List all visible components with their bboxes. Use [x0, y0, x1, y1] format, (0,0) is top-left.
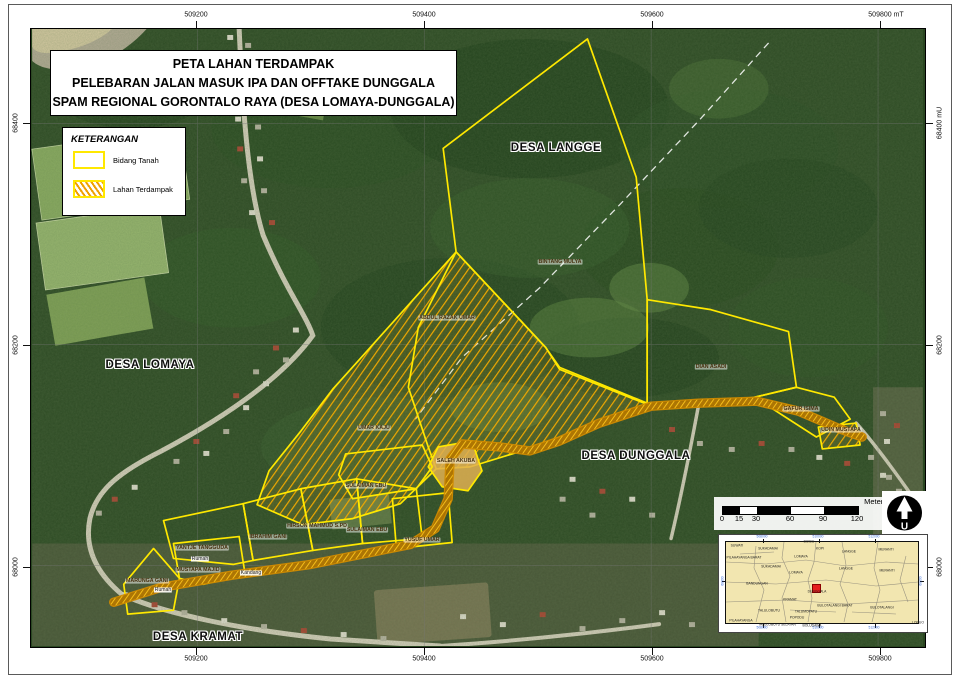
- inset-tick-bottom-3: 512000: [868, 626, 879, 629]
- parcel-label-ibrahim-gani: IBRAHIM GANI: [248, 534, 287, 539]
- parcel-label-sulaiman-ebu-2: SULAIMAN EBU: [346, 527, 388, 532]
- north-letter: U: [901, 522, 908, 533]
- axis-label-bottom-3: 509600: [640, 656, 663, 663]
- axis-label-top-2: 509400: [412, 12, 435, 19]
- north-arrow-icon: U: [882, 491, 927, 537]
- inset-tick-left: 68000: [721, 576, 724, 585]
- scale-tick-30: 30: [752, 514, 760, 523]
- inset-region-talulobutu: TALULOBUTU: [758, 609, 780, 612]
- scale-bar: Meters 0 15 30 60 90 120: [714, 497, 890, 530]
- parcel-label-umar-kaju: UMAR KAJU: [357, 425, 390, 430]
- inset-region-lomaya-2: LOMAYA: [789, 571, 803, 574]
- inset-region-suwati: SUWATI: [731, 544, 744, 547]
- inset-region-bandungan: BANDUNGAN: [746, 582, 767, 585]
- axis-label-top-3: 509600: [640, 12, 663, 19]
- inset-region-popodu: POPODU: [790, 616, 805, 619]
- scale-tick-0: 0: [720, 514, 724, 523]
- inset-region-talumopatu: TALUMOPATU: [795, 610, 817, 613]
- axis-label-right-1: 68400 mU: [937, 107, 944, 139]
- title-block: PETA LAHAN TERDAMPAK PELEBARAN JALAN MAS…: [50, 50, 457, 116]
- inset-region-pilahayanga-barat: PILAHAYANGA BARAT: [727, 556, 762, 559]
- legend-title: KETERANGAN: [71, 134, 138, 145]
- scale-tick-120: 120: [851, 514, 864, 523]
- legend: KETERANGAN Bidang Tanah Lahan Terdampak: [62, 127, 186, 216]
- inset-region-kramat: KRAMAT: [783, 598, 797, 601]
- axis-label-top-4: 509800 mT: [868, 12, 903, 19]
- north-arrow: U: [882, 491, 927, 537]
- map-title-line1: PETA LAHAN TERDAMPAK: [51, 55, 456, 74]
- inset-region-boludawa: BOLUDAWA: [803, 624, 822, 627]
- parcel-label-mustapa-majid: MUSTAPA MAJID: [176, 567, 221, 572]
- inset-region-talulobutu-selatan: TALULOBUTU SELATAN: [758, 623, 796, 626]
- legend-label-bidang-tanah: Bidang Tanah: [113, 156, 159, 165]
- parcel-label-bintang-mulya: BINTANG MULYA: [538, 259, 583, 264]
- village-label-kramat: DESA KRAMAT: [153, 631, 243, 643]
- axis-label-bottom-2: 509400: [412, 656, 435, 663]
- legend-label-lahan-terdampak: Lahan Terdampak: [113, 185, 173, 194]
- parcel-label-yantje-tangguda: YANTJE TANGGUDA: [175, 545, 229, 550]
- inset-region-meranti-1: MERANTI: [878, 548, 893, 551]
- axis-label-left-2: 68200: [13, 335, 20, 354]
- inset-region-meranti-2: MERANTI: [879, 569, 894, 572]
- inset-region-kopi: KOPI: [816, 547, 824, 550]
- village-label-langge: DESA LANGGE: [511, 142, 602, 154]
- map-title-line2: PELEBARAN JALAN MASUK IPA DAN OFFTAKE DU…: [51, 74, 456, 93]
- structure-label-kandang: Kandang: [240, 570, 262, 575]
- inset-region-bulotalangi: BULOTALANGI: [870, 606, 893, 609]
- axis-label-left-3: 68000: [13, 557, 20, 576]
- inset-region-dunggala: DUNGGALA: [808, 590, 827, 593]
- inset-region-boidu: BOIDU: [804, 540, 815, 543]
- inset-region-lomaya-1: LOMAYA: [794, 555, 808, 558]
- inset-region-langge-2: LANGGE: [839, 567, 853, 570]
- legend-swatch-bidang-tanah: [73, 151, 105, 169]
- parcel-label-gafur-isima: GAFUR ISIMA: [783, 406, 820, 411]
- map-title-line3: SPAM REGIONAL GORONTALO RAYA (DESA LOMAY…: [51, 93, 456, 112]
- parcel-label-abdul-razak-umar: ABDUL RAZAK UMAR: [418, 315, 475, 320]
- inset-region-pilahayanga: PILAHAYANGA: [729, 619, 752, 622]
- village-label-dunggala: DESA DUNGGALA: [582, 450, 691, 462]
- map-page: 509200 509400 509600 509800 mT 509200 50…: [0, 0, 960, 679]
- axis-label-left-1: 68400: [13, 113, 20, 132]
- inset-region-lonuo: LONUO: [912, 621, 924, 624]
- inset-region-sukadamai-1: SUKADAMAI: [758, 547, 778, 550]
- inset-tick-top-2: 510000: [812, 535, 823, 538]
- inset-tick-bottom-1: 508000: [756, 626, 767, 629]
- structure-label-rumah-1: Rumah: [191, 556, 209, 561]
- scale-tick-60: 60: [786, 514, 794, 523]
- inset-region-langge-1: LANGGE: [842, 550, 856, 553]
- parcel-label-dian-asadi: DIAN ASADI: [695, 364, 727, 369]
- parcel-label-marunga-gani: MARUNGA GANI: [125, 578, 169, 583]
- scale-tick-15: 15: [735, 514, 743, 523]
- axis-label-top-1: 509200: [184, 12, 207, 19]
- inset-region-sukadamai-2: SUKADAMAI: [761, 565, 781, 568]
- parcel-label-yusuf-umar: YUSUF UMAR: [404, 537, 441, 542]
- parcel-label-sulaiman-ebu-1: SULAIMAN EBU: [345, 483, 387, 488]
- legend-swatch-lahan-terdampak: [73, 180, 105, 198]
- structure-label-rumah-2: Rumah: [154, 587, 172, 592]
- parcel-label-saleh-akuba: SALEH AKUBA: [436, 458, 476, 463]
- parcel-label-udin-mustapa: UDIN MUSTAPA: [820, 427, 861, 432]
- axis-label-right-2: 68200: [937, 335, 944, 354]
- village-label-lomaya: DESA LOMAYA: [105, 359, 194, 371]
- scale-tick-90: 90: [819, 514, 827, 523]
- inset-tick-right: 68000: [919, 576, 922, 585]
- axis-label-bottom-1: 509200: [184, 656, 207, 663]
- inset-tick-top-3: 512000: [868, 535, 879, 538]
- parcel-label-hirson-mahmud: HIRSON MAHMUD S.PD: [286, 523, 348, 528]
- axis-label-right-3: 68000: [937, 557, 944, 576]
- inset-tick-top-1: 508000: [756, 535, 767, 538]
- axis-label-bottom-4: 509800: [868, 656, 891, 663]
- inset-region-bulotalangi-barat: BULOTALANGI BARAT: [817, 604, 852, 607]
